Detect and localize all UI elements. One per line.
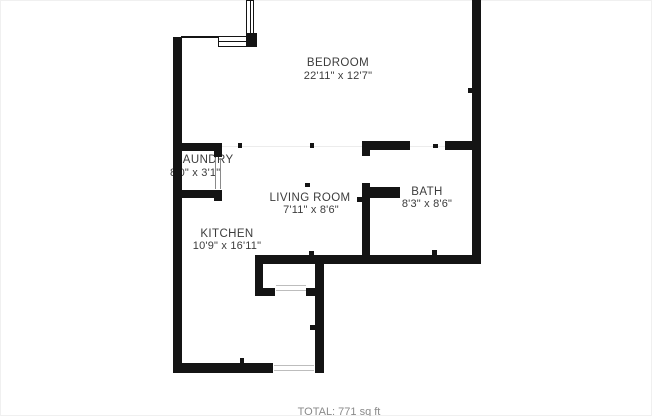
window-top-horizontal <box>218 36 247 47</box>
wall-mid-right <box>445 141 481 150</box>
tick-bedroom-right <box>468 88 472 93</box>
tick-kitchen-south <box>240 358 244 363</box>
tick-alcove-top <box>309 251 314 255</box>
tick-mid-opening-1 <box>238 143 242 148</box>
wall-laundry-cap-top <box>214 143 222 157</box>
wall-kitchen-bottom <box>173 363 273 373</box>
opening-line-bath <box>410 146 445 147</box>
wall-kitchen-east <box>315 257 324 373</box>
total-area-footer: TOTAL: 771 sq ft <box>298 406 381 416</box>
wall-top-sill <box>181 36 218 38</box>
door-entry <box>274 365 314 371</box>
room-label-laundry: LAUNDRY <box>176 154 234 166</box>
room-dims-bedroom: 22'11" x 12'7" <box>304 70 372 82</box>
room-dims-kitchen: 10'9" x 16'11" <box>193 240 261 252</box>
tick-kitchen-west <box>178 325 182 330</box>
tick-living-east <box>357 197 362 202</box>
window-top-vertical <box>246 0 254 34</box>
wall-laundry-cap-bottom <box>214 190 222 201</box>
wall-bath-cap-top <box>362 141 370 156</box>
tick-mid-opening-2 <box>310 143 314 148</box>
room-label-bath: BATH <box>411 186 442 198</box>
room-dims-living-room: 7'11" x 8'6" <box>283 204 339 216</box>
tick-living-center <box>305 183 310 187</box>
wall-alcove-stub-left <box>255 288 275 296</box>
wall-bath-stub <box>366 187 400 198</box>
wall-top-corner-post <box>246 33 257 47</box>
tick-bedroom-left <box>178 88 182 93</box>
wall-south <box>255 255 481 264</box>
room-label-bedroom: BEDROOM <box>307 57 369 69</box>
tick-bath-south <box>432 250 437 255</box>
tick-bath-door <box>433 144 438 148</box>
opening-line-bedroom <box>222 146 362 147</box>
room-label-kitchen: KITCHEN <box>200 228 253 240</box>
door-laundry <box>215 158 221 189</box>
floor-plan: BEDROOM 22'11" x 12'7" LAUNDRY 8'0" x 3'… <box>0 0 652 416</box>
wall-exterior-right <box>472 0 481 264</box>
room-dims-bath: 8'3" x 8'6" <box>402 198 452 210</box>
door-alcove <box>276 285 306 291</box>
room-label-living-room: LIVING ROOM <box>269 192 350 204</box>
tick-kitchen-east <box>310 325 315 330</box>
